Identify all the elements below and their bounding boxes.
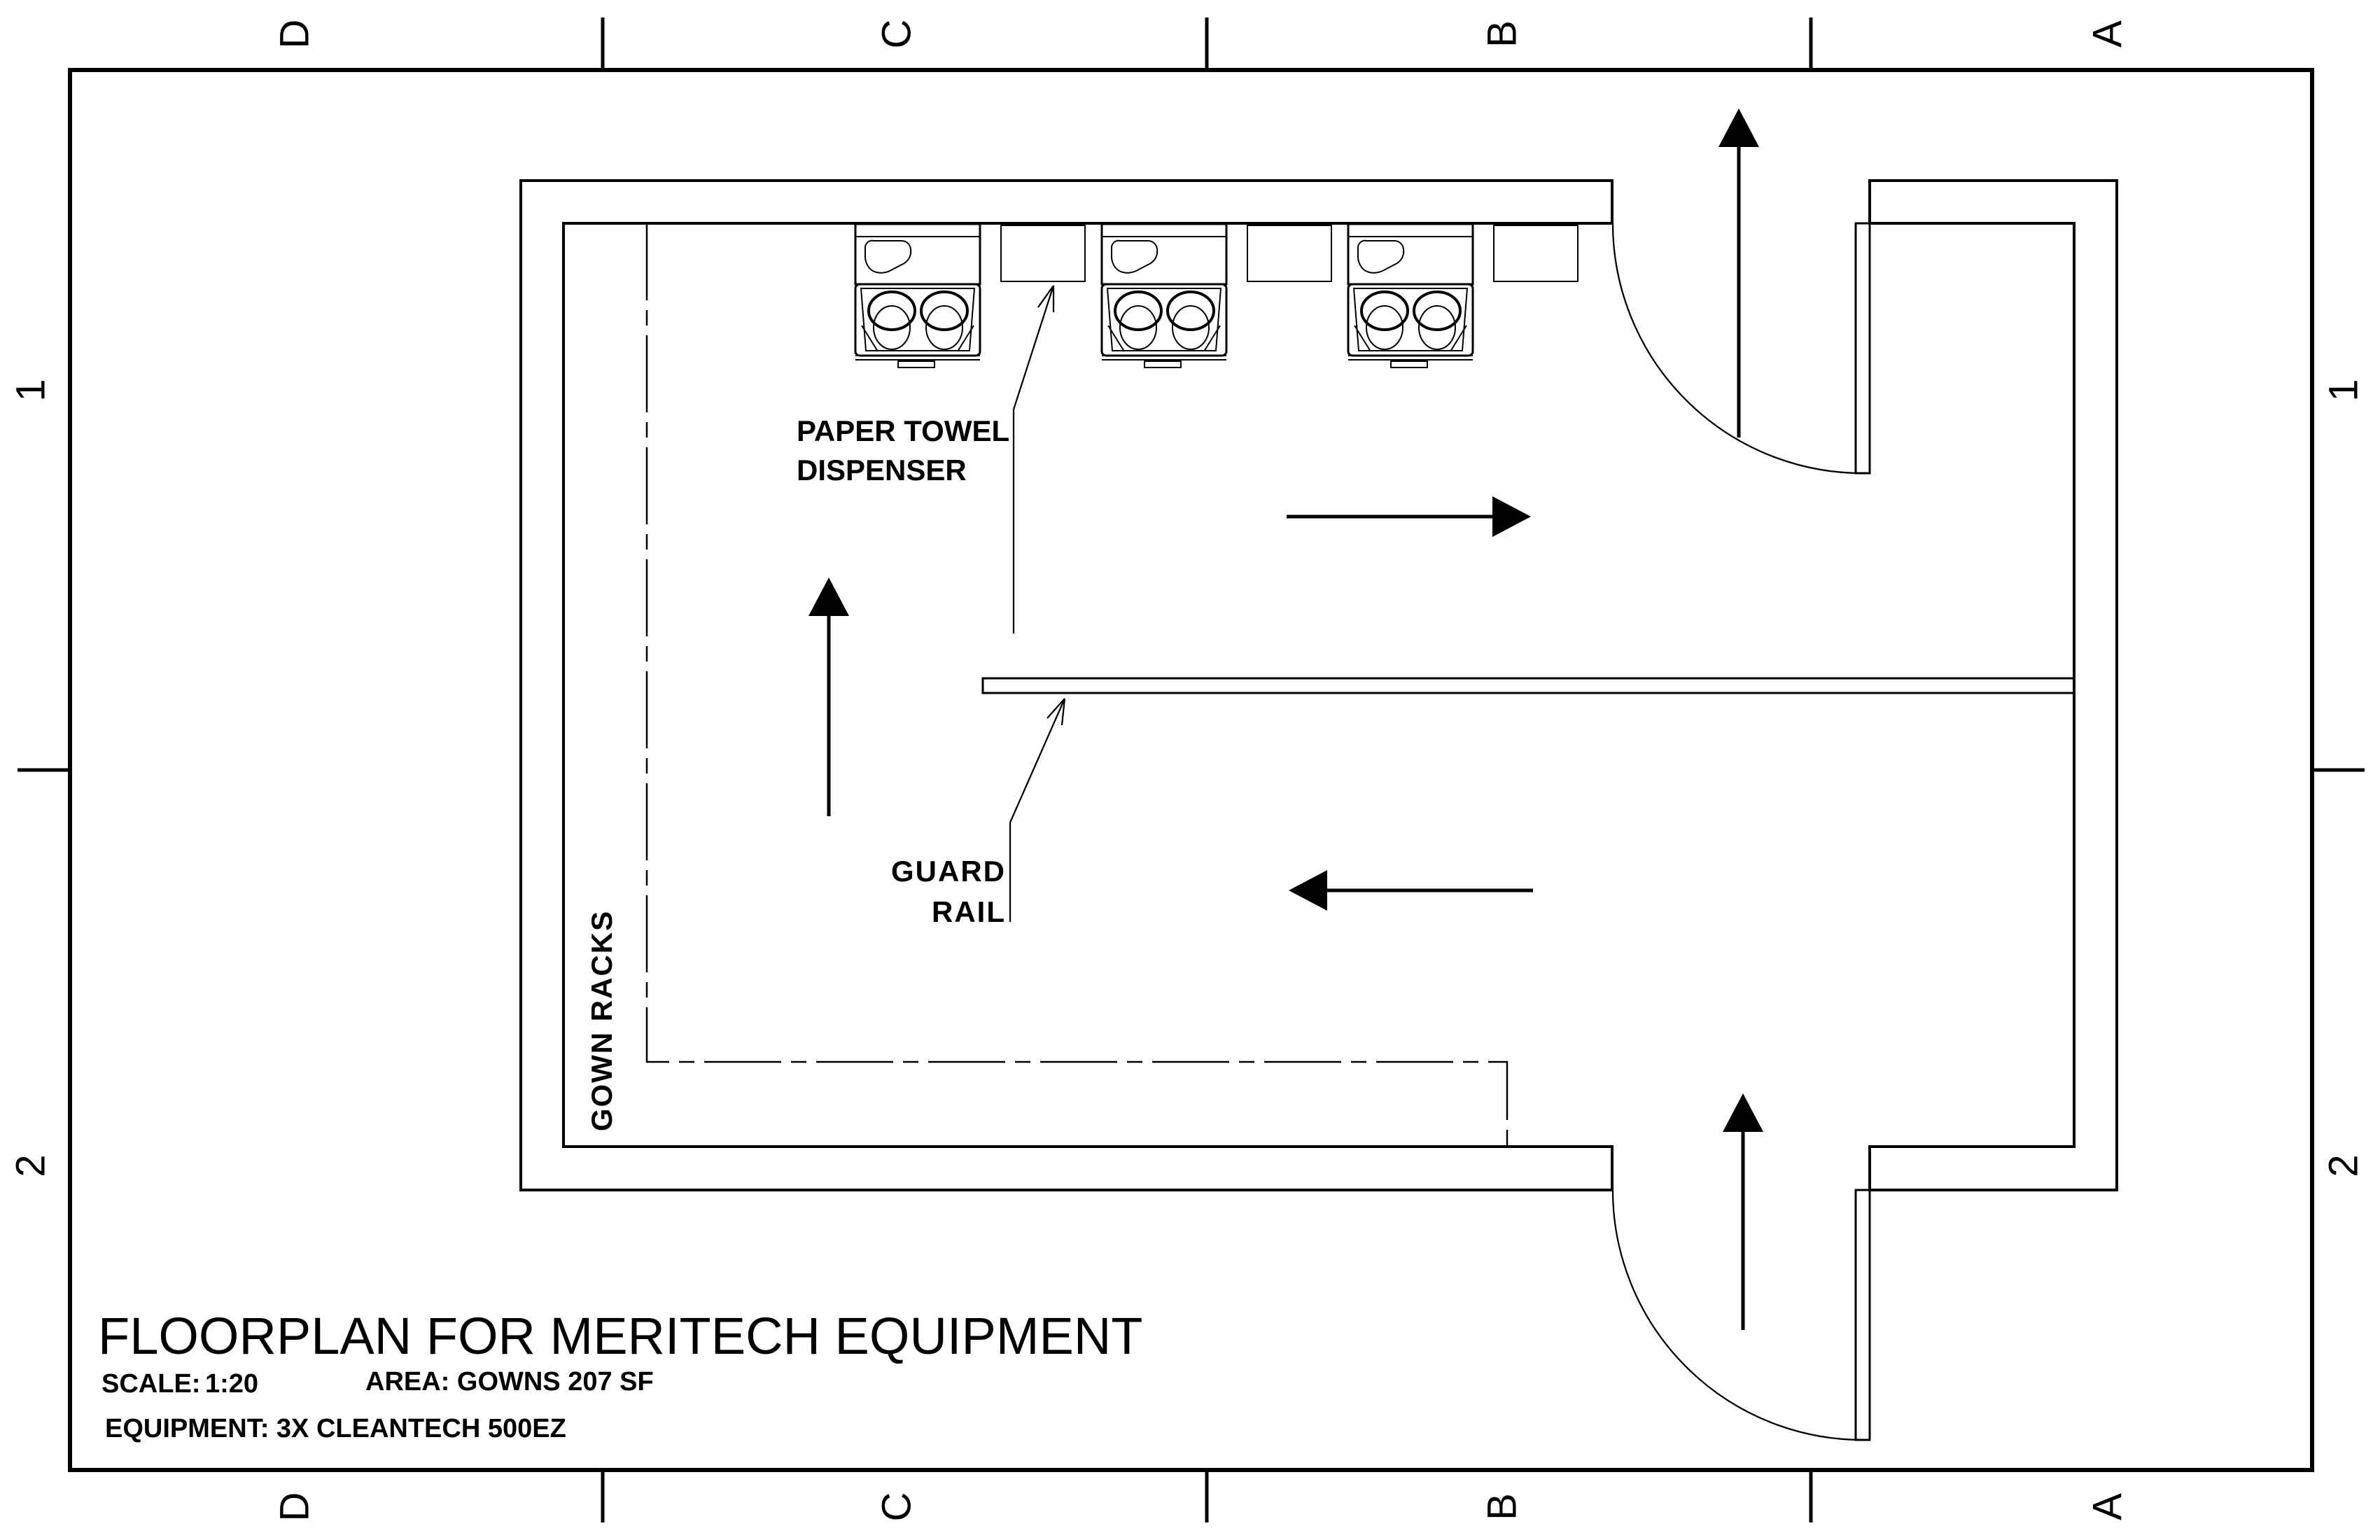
- equipment-note: EQUIPMENT: 3X CLEANTECH 500EZ: [105, 1414, 566, 1443]
- grid-label-right-1: 1: [2320, 378, 2366, 401]
- wall-left-section: [521, 181, 1612, 1190]
- grid-label-bottom-d: D: [272, 1492, 317, 1522]
- flow-arrow-gowning-area: [808, 577, 849, 816]
- flow-arrow-upper-corridor: [1287, 496, 1531, 537]
- gown-racks-label: GOWN RACKS: [585, 910, 618, 1131]
- grid-label-left-2: 2: [8, 1154, 53, 1177]
- grid-label-top-d: D: [272, 19, 317, 49]
- grid-label-top-b: B: [1479, 20, 1525, 48]
- door-top: [1613, 223, 1870, 473]
- border-frame: [70, 70, 2312, 1470]
- floorplan-drawing: D C B A D C B A 1 2 1 2: [0, 0, 2380, 1540]
- cleantech-500ez-unit-1: [855, 224, 980, 367]
- walls: [521, 181, 2117, 1190]
- flow-arrow-exit-top: [1718, 108, 1759, 437]
- cleantech-500ez-unit-3: [1348, 224, 1473, 367]
- grid-label-bottom-a: A: [2085, 1492, 2130, 1520]
- guard-rail: [983, 678, 2074, 693]
- grid-label-right-2: 2: [2320, 1154, 2366, 1177]
- flow-arrow-entry-bottom: [1723, 1093, 1763, 1330]
- paper-towel-dispenser-2: [1247, 225, 1331, 281]
- area-note: AREA: GOWNS 207 SF: [365, 1367, 654, 1396]
- door-swing-arc-bottom: [1613, 1190, 1863, 1440]
- paper-towel-dispenser-3: [1494, 225, 1578, 281]
- drawing-title: FLOORPLAN FOR MERITECH EQUIPMENT: [98, 1307, 1142, 1365]
- grid-label-left-1: 1: [8, 378, 53, 401]
- title-block: FLOORPLAN FOR MERITECH EQUIPMENT SCALE: …: [98, 1307, 1142, 1443]
- grid-label-bottom-b: B: [1479, 1492, 1525, 1520]
- flow-arrow-lower-corridor: [1289, 870, 1533, 911]
- paper-towel-dispenser-1: [1001, 225, 1085, 281]
- guard-rail-label-line1: GUARD: [891, 855, 1006, 888]
- paper-towel-label-line1: PAPER TOWEL: [797, 414, 1009, 447]
- paper-towel-label-line2: DISPENSER: [797, 454, 967, 486]
- guard-rail-label-line2: RAIL: [932, 895, 1006, 928]
- paper-towel-leader: [1014, 286, 1053, 633]
- gown-rack-boundary: [647, 223, 1507, 1147]
- drawing-sheet: D C B A D C B A 1 2 1 2: [0, 0, 2380, 1540]
- grid-label-top-c: C: [874, 19, 919, 49]
- cleantech-500ez-unit-2: [1102, 224, 1226, 367]
- wall-right-section: [1870, 181, 2117, 1190]
- annotation-labels: PAPER TOWEL DISPENSER GUARD RAIL GOWN RA…: [585, 414, 1009, 1131]
- sheet-border: [17, 17, 2365, 1522]
- door-leaf-bottom: [1856, 1190, 1870, 1440]
- scale-label: SCALE:: [101, 1369, 200, 1399]
- grid-label-bottom-c: C: [874, 1492, 919, 1522]
- grid-label-top-a: A: [2085, 20, 2130, 48]
- guard-rail-leader: [1010, 699, 1065, 922]
- scale-value: 1:20: [205, 1369, 258, 1399]
- door-leaf-top: [1856, 223, 1870, 473]
- grid-reference-labels: D C B A D C B A 1 2 1 2: [8, 19, 2366, 1522]
